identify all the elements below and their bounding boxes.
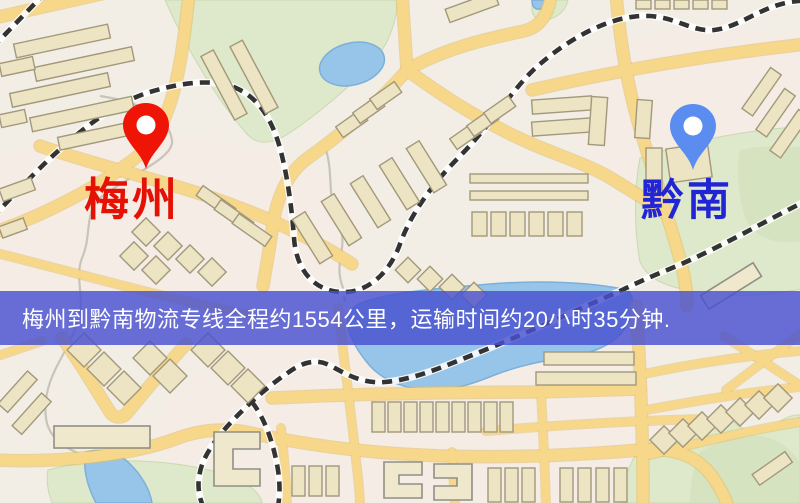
destination-label: 黔南	[641, 180, 733, 223]
origin-pin-icon	[119, 101, 173, 171]
destination-pin-icon	[666, 102, 720, 172]
origin-label: 梅州	[84, 177, 180, 222]
route-info-banner: 梅州到黔南物流专线全程约1554公里，运输时间约20小时35分钟.	[0, 291, 800, 345]
route-info-text: 梅州到黔南物流专线全程约1554公里，运输时间约20小时35分钟.	[0, 302, 671, 334]
logistics-route-map: 梅州 黔南 梅州到黔南物流专线全程约1554公里，运输时间约20小时35分钟.	[0, 0, 800, 503]
map-canvas	[0, 0, 800, 503]
